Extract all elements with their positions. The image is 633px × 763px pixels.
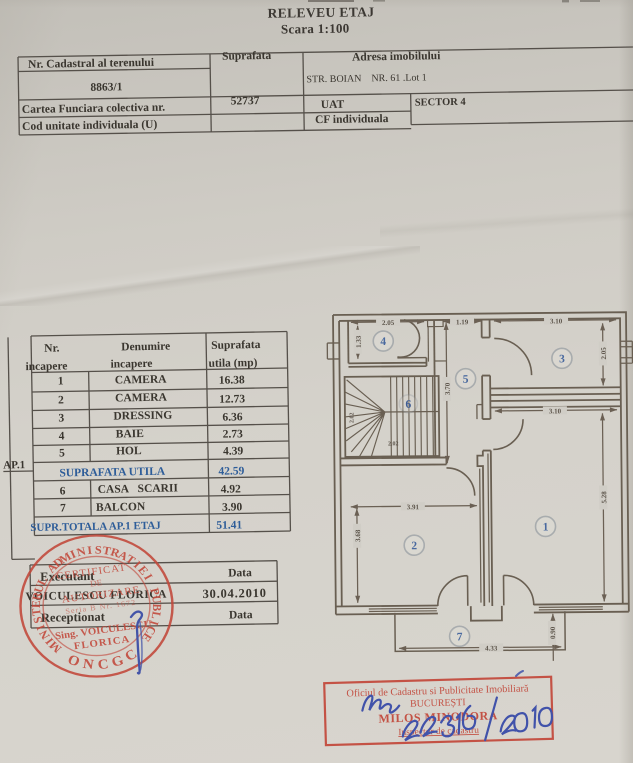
svg-text:utila (mp): utila (mp)	[208, 357, 257, 370]
svg-text:3.10: 3.10	[550, 317, 563, 325]
svg-text:3: 3	[58, 412, 64, 424]
svg-text:4: 4	[59, 430, 65, 442]
svg-text:2.02: 2.02	[388, 441, 399, 447]
svg-text:CAMERA: CAMERA	[115, 392, 168, 405]
svg-text:Denumire: Denumire	[121, 341, 170, 354]
svg-text:1.19: 1.19	[456, 318, 469, 326]
svg-text:0.90: 0.90	[549, 626, 557, 639]
svg-text:7: 7	[60, 502, 66, 514]
svg-text:Suprafata: Suprafata	[211, 339, 261, 352]
svg-text:N: N	[82, 656, 95, 673]
svg-text:AP.1: AP.1	[3, 459, 25, 471]
svg-text:STR. BOIAN NR. 61 .Lot 1: STR. BOIAN NR. 61 .Lot 1	[306, 72, 426, 85]
svg-text:Data: Data	[228, 567, 252, 579]
svg-text:Nr. Cadastral al terenului: Nr. Cadastral al terenului	[28, 57, 155, 71]
svg-text:1: 1	[58, 375, 64, 387]
svg-text:C: C	[97, 657, 109, 673]
svg-text:3.70: 3.70	[444, 382, 452, 395]
svg-text:30.04.2010: 30.04.2010	[202, 586, 266, 601]
svg-text:Data: Data	[229, 609, 253, 621]
svg-text:12.73: 12.73	[219, 393, 245, 405]
svg-text:2: 2	[411, 540, 417, 552]
svg-text:4.33: 4.33	[485, 644, 498, 652]
svg-text:8863/1: 8863/1	[90, 81, 122, 94]
svg-text:7: 7	[457, 631, 463, 643]
svg-text:4.92: 4.92	[221, 483, 242, 495]
svg-text:SUPR.TOTALA AP.1 ETAJ: SUPR.TOTALA AP.1 ETAJ	[30, 520, 161, 534]
svg-text:Suprafata: Suprafata	[222, 50, 272, 63]
svg-text:6: 6	[405, 399, 411, 411]
svg-text:Cod unitate individuala (U): Cod unitate individuala (U)	[22, 119, 158, 133]
svg-text:5: 5	[463, 374, 469, 386]
svg-text:2.05: 2.05	[600, 347, 608, 360]
svg-text:16.38: 16.38	[219, 374, 245, 386]
svg-text:HOL: HOL	[116, 445, 142, 457]
svg-text:4: 4	[380, 336, 386, 348]
svg-text:1.33: 1.33	[355, 335, 363, 348]
svg-text:2.02: 2.02	[349, 413, 355, 424]
svg-text:3: 3	[559, 353, 565, 365]
svg-text:3.91: 3.91	[407, 503, 420, 511]
svg-text:4.39: 4.39	[223, 445, 244, 457]
svg-text:SECTOR 4: SECTOR 4	[415, 97, 467, 109]
svg-text:6.36: 6.36	[222, 411, 243, 423]
svg-text:incapere: incapere	[110, 358, 152, 371]
svg-text:3.90: 3.90	[222, 501, 243, 513]
svg-text:O: O	[65, 652, 82, 670]
svg-text:BALCON: BALCON	[96, 501, 146, 514]
svg-text:Cartea Funciara colectiva n: Cartea Funciara colectiva nr.	[22, 102, 166, 116]
svg-text:2.05: 2.05	[382, 319, 395, 327]
svg-text:I: I	[86, 543, 93, 557]
svg-text:2.73: 2.73	[223, 428, 244, 440]
svg-text:42.59: 42.59	[218, 465, 244, 477]
svg-text:Adresa imobilului: Adresa imobilului	[352, 50, 441, 63]
svg-text:52737: 52737	[231, 95, 260, 107]
svg-text:RELEVEU ETAJ: RELEVEU ETAJ	[267, 4, 374, 20]
svg-text:3.10: 3.10	[549, 407, 562, 415]
svg-text:1: 1	[543, 521, 549, 533]
svg-text:DRESSING: DRESSING	[113, 410, 172, 423]
svg-text:2: 2	[58, 394, 64, 406]
svg-text:BUCUREȘTI: BUCUREȘTI	[410, 697, 466, 710]
svg-text:6: 6	[60, 485, 66, 497]
svg-text:5.28: 5.28	[600, 491, 608, 504]
svg-text:incapere: incapere	[25, 360, 67, 373]
svg-text:SUPRAFATA UTILA: SUPRAFATA UTILA	[59, 466, 166, 480]
svg-text:CAMERA: CAMERA	[115, 374, 168, 387]
svg-text:Scara 1:100: Scara 1:100	[281, 21, 350, 37]
svg-text:5: 5	[59, 447, 65, 459]
svg-text:DE: DE	[89, 577, 103, 588]
svg-text:MILOȘ MINODORA: MILOȘ MINODORA	[378, 708, 498, 726]
svg-text:Nr.: Nr.	[44, 343, 60, 355]
svg-text:51.41: 51.41	[216, 519, 242, 531]
svg-text:3.68: 3.68	[354, 529, 362, 542]
svg-text:CASA SCARII: CASA SCARII	[98, 482, 179, 495]
svg-text:UAT: UAT	[321, 99, 345, 111]
svg-text:BAIE: BAIE	[116, 428, 145, 440]
svg-text:CF individuala: CF individuala	[315, 113, 389, 126]
